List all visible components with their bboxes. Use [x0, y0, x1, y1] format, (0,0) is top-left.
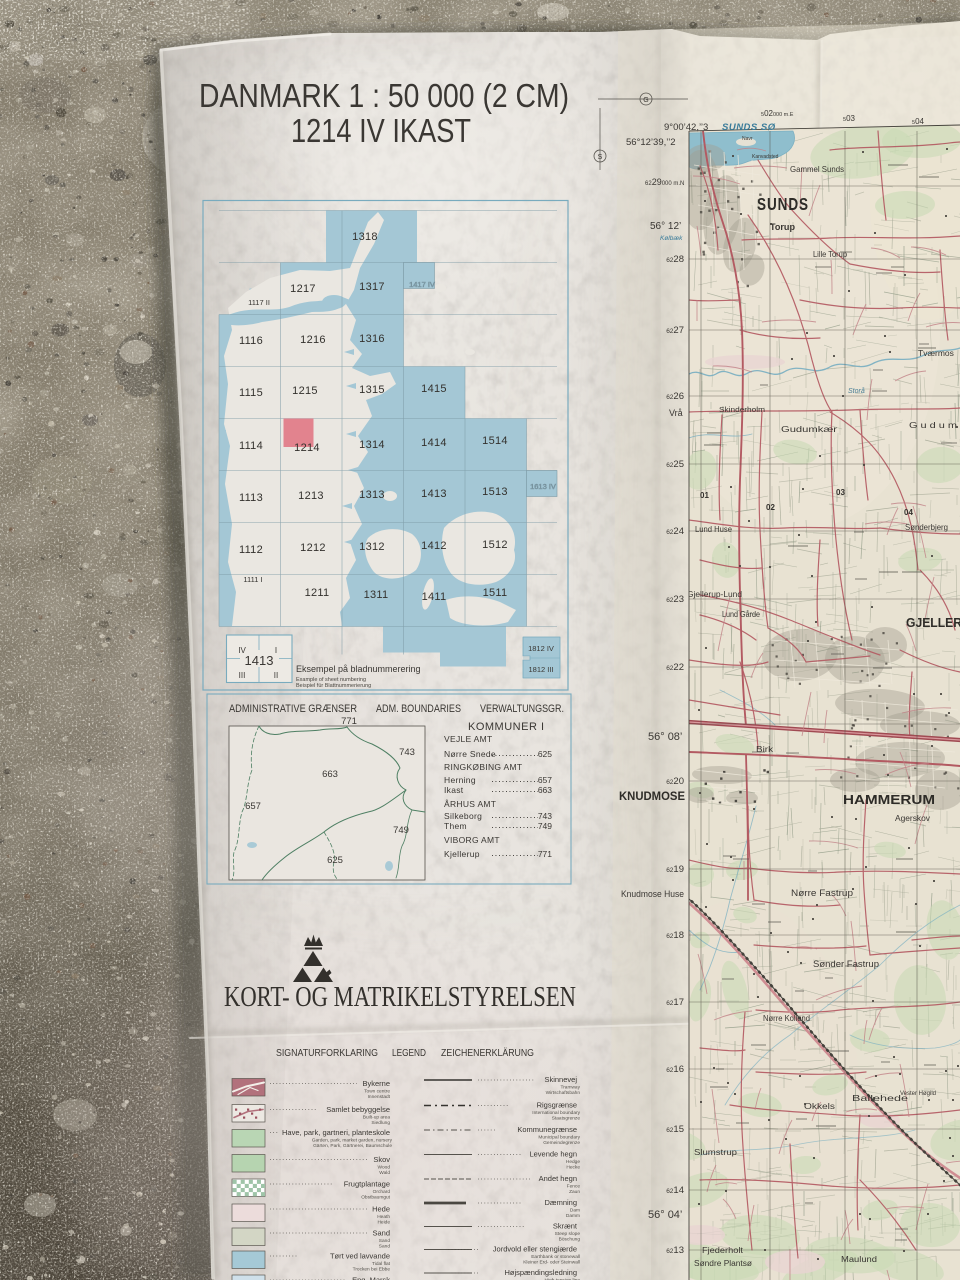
svg-text:1414: 1414: [421, 437, 447, 449]
svg-text:Garden, park, market garden, n: Garden, park, market garden, nursery: [312, 1138, 393, 1144]
svg-text:II: II: [274, 671, 278, 680]
svg-text:Maulund: Maulund: [841, 1255, 877, 1264]
svg-text:Sand: Sand: [379, 1238, 391, 1244]
svg-text:Tramway: Tramway: [560, 1085, 580, 1091]
svg-text:1214: 1214: [294, 442, 320, 454]
svg-text:Søndre Plantsø: Søndre Plantsø: [694, 1259, 752, 1268]
svg-text:Zaun: Zaun: [569, 1189, 580, 1195]
svg-text:Rigsgrænse: Rigsgrænse: [537, 1101, 577, 1110]
svg-text:1116: 1116: [239, 335, 263, 347]
svg-text:1212: 1212: [300, 542, 326, 554]
svg-text:56° 12’: 56° 12’: [650, 221, 681, 232]
svg-text:Fjederholt: Fjederholt: [702, 1246, 744, 1255]
svg-text:GJELLER: GJELLER: [906, 616, 960, 630]
svg-text:III: III: [239, 671, 246, 680]
svg-text:Skinnevej: Skinnevej: [544, 1075, 577, 1084]
svg-text:Heath: Heath: [377, 1214, 390, 1220]
svg-text:Gemeindegrenze: Gemeindegrenze: [543, 1140, 580, 1146]
svg-text:1512: 1512: [482, 539, 508, 551]
svg-text:Tørt ved lavvande: Tørt ved lavvande: [330, 1252, 390, 1261]
svg-text:Silkeborg: Silkeborg: [444, 811, 482, 821]
svg-text:Kjellerup: Kjellerup: [444, 849, 480, 859]
svg-text:LEGEND: LEGEND: [392, 1047, 426, 1059]
svg-text:749: 749: [393, 825, 409, 836]
svg-text:Jordvold eller stengiærde: Jordvold eller stengiærde: [493, 1245, 577, 1254]
svg-text:Böschung: Böschung: [559, 1237, 581, 1243]
svg-text:1511: 1511: [483, 587, 508, 599]
svg-text:S: S: [598, 154, 603, 161]
svg-text:1318: 1318: [352, 231, 378, 243]
svg-text:Trocken bei Ebbe: Trocken bei Ebbe: [353, 1267, 391, 1273]
svg-text:1115: 1115: [239, 387, 263, 399]
svg-text:1413: 1413: [421, 488, 447, 500]
svg-text:Gudumkær: Gudumkær: [781, 424, 837, 434]
svg-text:1514: 1514: [482, 435, 508, 447]
svg-text:Heide: Heide: [377, 1220, 390, 1226]
svg-text:Gammel Sunds: Gammel Sunds: [790, 164, 844, 174]
svg-text:Kommunegrænse: Kommunegrænse: [517, 1125, 577, 1134]
svg-text:1413: 1413: [245, 653, 274, 668]
svg-text:9°00’42,’’3: 9°00’42,’’3: [664, 122, 708, 133]
svg-text:01: 01: [700, 491, 709, 500]
svg-text:Gärten, Park, Gärtnerei, Baums: Gärten, Park, Gärtnerei, Baumschule: [313, 1143, 392, 1149]
svg-text:Torup: Torup: [770, 222, 796, 232]
svg-text:Tidal flat: Tidal flat: [372, 1261, 391, 1267]
svg-text:743: 743: [538, 811, 552, 821]
svg-text:1411: 1411: [422, 591, 447, 603]
svg-text:1112: 1112: [239, 544, 263, 556]
svg-text:Højspændingsledning: Højspændingsledning: [504, 1268, 577, 1277]
svg-text:Staatsgrenze: Staatsgrenze: [552, 1116, 581, 1122]
svg-text:1114: 1114: [239, 440, 263, 452]
svg-text:VERWALTUNGSGR.: VERWALTUNGSGR.: [480, 703, 564, 715]
svg-text:Frugtplantage: Frugtplantage: [344, 1180, 390, 1189]
svg-text:KNUDMOSE: KNUDMOSE: [619, 791, 685, 803]
svg-text:Hedge: Hedge: [566, 1159, 580, 1165]
svg-text:Municipal boundary: Municipal boundary: [538, 1135, 580, 1141]
svg-text:Nørre Snede: Nørre Snede: [444, 749, 496, 759]
svg-text:1117 II: 1117 II: [248, 298, 270, 307]
svg-text:1213: 1213: [298, 490, 324, 502]
svg-text:Lund Huse: Lund Huse: [695, 525, 733, 534]
svg-text:Have, park, gartneri, plantesk: Have, park, gartneri, planteskole: [282, 1128, 390, 1137]
svg-text:663: 663: [322, 769, 338, 780]
svg-text:04: 04: [904, 508, 913, 517]
svg-text:IV: IV: [238, 646, 246, 655]
svg-text:DANMARK 1 : 50 000 (2 CM): DANMARK 1 : 50 000 (2 CM): [199, 77, 569, 114]
svg-text:Okkels: Okkels: [804, 1102, 835, 1111]
svg-text:RINGKØBING AMT: RINGKØBING AMT: [444, 762, 522, 772]
svg-text:1415: 1415: [421, 383, 447, 395]
svg-text:1216: 1216: [300, 334, 326, 346]
svg-text:Storå: Storå: [848, 387, 865, 395]
svg-text:625: 625: [538, 749, 552, 759]
svg-text:Samlet bebyggelse: Samlet bebyggelse: [326, 1105, 390, 1114]
svg-text:Nørre Fastrup: Nørre Fastrup: [791, 888, 853, 898]
svg-text:Andet hegn: Andet hegn: [539, 1174, 577, 1183]
svg-text:ADM. BOUNDARIES: ADM. BOUNDARIES: [376, 703, 461, 715]
svg-text:1215: 1215: [292, 385, 318, 397]
svg-text:749: 749: [538, 821, 552, 831]
svg-text:Vrå: Vrå: [669, 408, 683, 418]
svg-text:Kanvadsted: Kanvadsted: [752, 154, 779, 160]
svg-text:625: 625: [327, 855, 343, 866]
svg-text:Hede: Hede: [372, 1205, 390, 1214]
svg-text:743: 743: [399, 747, 415, 758]
svg-text:Skrænt: Skrænt: [553, 1222, 578, 1231]
svg-text:Tværmos: Tværmos: [918, 348, 954, 358]
svg-text:1211: 1211: [305, 587, 330, 599]
svg-text:Hecke: Hecke: [566, 1165, 580, 1171]
svg-text:Wirtschaftsbahn: Wirtschaftsbahn: [546, 1090, 581, 1096]
svg-text:663: 663: [538, 785, 552, 795]
svg-text:SUNDS: SUNDS: [757, 194, 809, 214]
svg-text:1316: 1316: [359, 333, 385, 345]
svg-text:SIGNATURFORKLARING: SIGNATURFORKLARING: [276, 1047, 378, 1059]
svg-text:Built-up area: Built-up area: [363, 1115, 391, 1121]
svg-text:ZEICHENERKLÄRUNG: ZEICHENERKLÄRUNG: [441, 1047, 534, 1059]
svg-text:Earthbank or stonewall: Earthbank or stonewall: [531, 1254, 580, 1260]
svg-text:Beispiel für Blattnummerierung: Beispiel für Blattnummerierung: [296, 683, 371, 689]
svg-text:Herning: Herning: [444, 775, 476, 785]
svg-text:VIBORG AMT: VIBORG AMT: [444, 835, 500, 845]
svg-text:Gjellerup-Lund: Gjellerup-Lund: [687, 590, 742, 599]
svg-text:I: I: [275, 646, 277, 655]
svg-text:Knudmose Huse: Knudmose Huse: [621, 889, 684, 899]
svg-text:ÅRHUS AMT: ÅRHUS AMT: [444, 799, 496, 809]
svg-text:Skov: Skov: [373, 1155, 390, 1164]
svg-text:Orchard: Orchard: [373, 1189, 391, 1195]
svg-text:Slumstrup: Slumstrup: [694, 1147, 737, 1157]
svg-text:Skinderholm: Skinderholm: [719, 405, 765, 414]
svg-text:SUNDS SØ: SUNDS SØ: [722, 122, 776, 133]
svg-text:Them: Them: [444, 821, 467, 831]
svg-text:Damm: Damm: [566, 1213, 580, 1219]
svg-text:1111 I: 1111 I: [243, 575, 262, 584]
svg-text:Levende hegn: Levende hegn: [529, 1150, 577, 1159]
svg-text:Sønder Fastrup: Sønder Fastrup: [813, 959, 879, 969]
svg-text:Siedlung: Siedlung: [371, 1120, 390, 1126]
svg-text:1214 IV IKAST: 1214 IV IKAST: [291, 112, 471, 149]
svg-text:KOMMUNER I: KOMMUNER I: [468, 721, 545, 733]
svg-text:02: 02: [766, 503, 775, 512]
svg-text:G: G: [643, 97, 648, 104]
svg-text:1315: 1315: [359, 384, 385, 396]
svg-text:Vester Høgild: Vester Høgild: [900, 1091, 936, 1097]
svg-text:1217: 1217: [290, 283, 316, 295]
svg-text:Sand: Sand: [372, 1229, 390, 1238]
svg-text:1113: 1113: [239, 492, 263, 504]
svg-text:Dam: Dam: [570, 1208, 580, 1214]
svg-text:Wood: Wood: [378, 1165, 391, 1171]
svg-text:56° 08’: 56° 08’: [648, 731, 682, 743]
svg-text:Bykerne: Bykerne: [362, 1079, 390, 1088]
svg-text:VEJLE AMT: VEJLE AMT: [444, 734, 493, 744]
svg-text:Sand: Sand: [379, 1244, 391, 1250]
svg-text:Obstbaumgut: Obstbaumgut: [361, 1195, 390, 1201]
svg-text:KORT- OG MATRIKELSTYRELSEN: KORT- OG MATRIKELSTYRELSEN: [224, 982, 576, 1013]
svg-text:Sønderbjerg: Sønderbjerg: [905, 523, 948, 532]
svg-text:HAMMERUM: HAMMERUM: [843, 792, 935, 807]
svg-text:1812 III: 1812 III: [528, 665, 553, 674]
svg-text:Kleiner Erd- oder Steinwall: Kleiner Erd- oder Steinwall: [523, 1260, 580, 1266]
svg-text:1314: 1314: [359, 439, 385, 451]
svg-text:Wald: Wald: [379, 1170, 390, 1176]
svg-text:657: 657: [245, 801, 261, 812]
svg-text:56°12’39,’’2: 56°12’39,’’2: [626, 137, 676, 148]
svg-text:Dæmning: Dæmning: [544, 1198, 577, 1207]
svg-text:G u d u m: G u d u m: [909, 420, 957, 430]
svg-text:1311: 1311: [364, 589, 389, 601]
svg-text:1417 IV: 1417 IV: [409, 280, 435, 289]
svg-text:Town centre: Town centre: [364, 1089, 390, 1095]
svg-text:1313: 1313: [359, 489, 385, 501]
svg-text:Nørre Kollund: Nørre Kollund: [763, 1013, 810, 1023]
svg-text:ADMINISTRATIVE GRÆNSER: ADMINISTRATIVE GRÆNSER: [229, 703, 357, 715]
svg-text:56° 04’: 56° 04’: [648, 1209, 682, 1221]
svg-text:1317: 1317: [359, 281, 385, 293]
svg-text:Fence: Fence: [567, 1184, 581, 1190]
svg-text:1812 IV: 1812 IV: [528, 644, 554, 653]
svg-text:Eng. Marsk: Eng. Marsk: [352, 1276, 390, 1280]
svg-text:1312: 1312: [359, 541, 385, 553]
svg-text:Navr: Navr: [742, 136, 753, 142]
svg-text:Agerskov: Agerskov: [895, 814, 930, 823]
svg-text:1613 IV: 1613 IV: [530, 482, 556, 491]
svg-text:03: 03: [836, 488, 845, 497]
svg-text:Kølbæk: Kølbæk: [660, 235, 683, 242]
svg-text:International boundary: International boundary: [532, 1110, 580, 1116]
svg-text:1513: 1513: [482, 486, 508, 498]
svg-text:Ikast: Ikast: [444, 785, 464, 795]
svg-text:Eksempel på bladnummerering: Eksempel på bladnummerering: [296, 664, 421, 674]
svg-text:1412: 1412: [421, 540, 447, 552]
svg-text:771: 771: [341, 716, 357, 727]
svg-text:Innenstadt: Innenstadt: [368, 1094, 391, 1100]
svg-text:Steep slope: Steep slope: [555, 1231, 581, 1237]
svg-text:771: 771: [538, 849, 552, 859]
svg-text:657: 657: [538, 775, 552, 785]
svg-text:Lund Gårde: Lund Gårde: [722, 610, 760, 619]
